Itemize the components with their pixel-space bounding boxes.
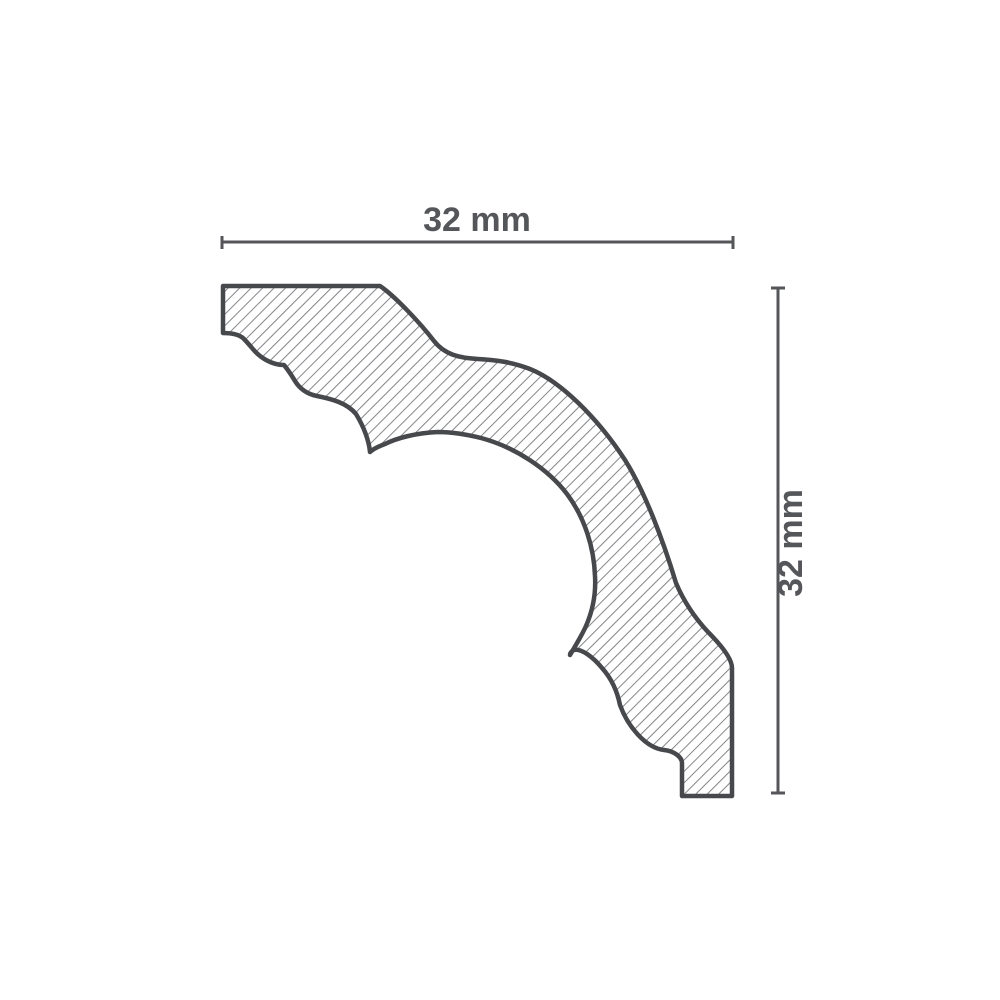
height-dimension-label: 32 mm (772, 489, 810, 597)
drawing-canvas: 32 mm 32 mm (0, 0, 1000, 1000)
width-dimension-label: 32 mm (423, 201, 531, 239)
molding-profile-diagram: 32 mm 32 mm (0, 0, 1000, 1000)
molding-profile-shape (223, 286, 732, 796)
profile-outline-group (223, 286, 732, 796)
